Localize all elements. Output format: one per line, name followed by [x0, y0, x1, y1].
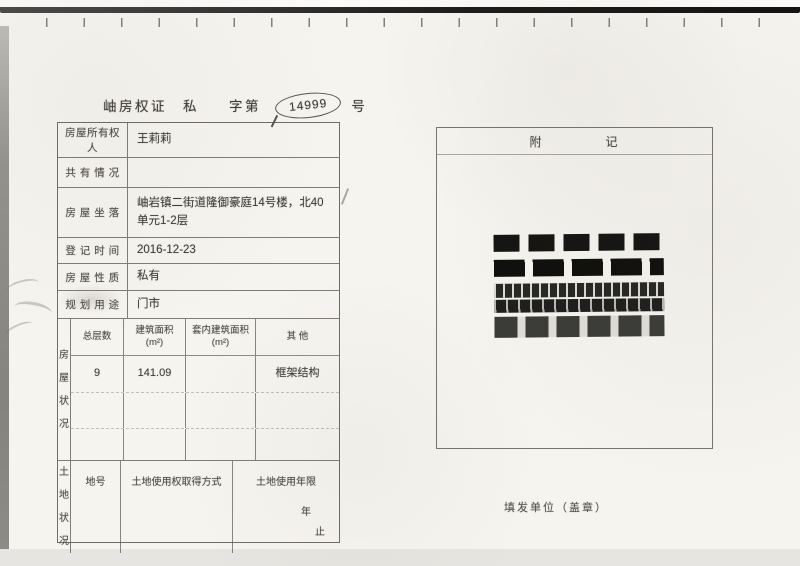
table-row: 登 记 时 间 2016-12-23 [58, 238, 339, 264]
certificate-form-table: 房屋所有权人 王莉莉 共 有 情 况 房 屋 坐 落 岫岩镇二街道隆御豪庭14号… [57, 122, 340, 543]
building-area-value: 141.09 [124, 356, 186, 392]
scanned-certificate-page: 岫房权证 私 字第 14999 号 房屋所有权人 王莉莉 共 有 情 况 房 屋… [0, 0, 800, 566]
registration-date-value: 2016-12-23 [128, 238, 339, 263]
land-parcel-number-header: 地号 [71, 461, 121, 553]
scan-edge-line [0, 7, 800, 13]
co-ownership-value [128, 158, 339, 187]
certificate-title-suffix: 号 [351, 95, 367, 115]
remarks-header: 附 记 [437, 128, 712, 155]
land-use-term-text: 土地使用年限 [256, 477, 316, 488]
planned-use-value: 门市 [128, 291, 339, 318]
stray-pen-mark [341, 188, 349, 205]
certificate-title-mid: 字第 [229, 95, 261, 115]
housing-condition-side-strip: 房屋状况 [58, 319, 71, 460]
land-condition-section: 土地状况 地号 土地使用权取得方式 土地使用年限 年 止 [58, 461, 339, 553]
certificate-ownership-type: 私 [183, 95, 199, 115]
certificate-title-prefix: 岫房权证 [103, 95, 167, 115]
housing-header-row: 总层数 建筑面积 (m²) 套内建筑面积 (m²) 其 他 [71, 319, 339, 356]
housing-empty-row [71, 429, 339, 460]
empty-cell [186, 429, 256, 460]
inner-area-header: 套内建筑面积 (m²) [186, 319, 256, 355]
land-use-right-acquisition-header: 土地使用权取得方式 [121, 461, 233, 553]
certificate-title: 岫房权证 私 字第 14999 号 [103, 90, 367, 120]
registration-date-label: 登 记 时 间 [58, 238, 128, 263]
co-ownership-label: 共 有 情 况 [58, 158, 128, 187]
empty-cell [256, 393, 339, 428]
empty-cell [256, 429, 339, 460]
margin-ink-smudge [2, 272, 56, 352]
land-condition-side-strip: 土地状况 [58, 461, 71, 553]
housing-condition-table: 总层数 建筑面积 (m²) 套内建筑面积 (m²) 其 他 9 141.09 框… [71, 319, 339, 460]
building-area-header: 建筑面积 (m²) [124, 319, 186, 355]
other-value: 框架结构 [256, 356, 339, 392]
total-floors-value: 9 [71, 356, 124, 392]
remarks-title-left-char: 附 [529, 133, 543, 150]
table-row: 房屋所有权人 王莉莉 [58, 123, 339, 158]
empty-cell [124, 429, 186, 460]
owner-label: 房屋所有权人 [58, 123, 128, 157]
remarks-title-right-char: 记 [606, 133, 620, 150]
land-use-term-header: 土地使用年限 年 止 [233, 461, 339, 553]
label-smudge [58, 284, 124, 314]
stamp-text-row [494, 315, 664, 338]
stamp-text-row [494, 282, 664, 298]
illegible-seal-stamp [493, 233, 664, 338]
housing-condition-label: 房屋状况 [59, 344, 70, 436]
inner-area-value [186, 356, 256, 392]
location-label: 房 屋 坐 落 [58, 188, 128, 237]
property-nature-value: 私有 [128, 264, 339, 290]
empty-cell [71, 393, 124, 428]
stamp-text-row [493, 233, 663, 252]
table-row: 房 屋 坐 落 岫岩镇二街道隆御豪庭14号楼，北40单元1-2层 [58, 188, 339, 238]
total-floors-header: 总层数 [71, 319, 124, 355]
stamp-text-row [494, 298, 664, 313]
empty-cell [71, 429, 124, 460]
land-condition-table: 地号 土地使用权取得方式 土地使用年限 年 止 [71, 461, 339, 553]
term-end-mark: 止 [315, 523, 325, 538]
other-header: 其 他 [256, 319, 339, 355]
land-condition-label: 土地状况 [59, 461, 70, 553]
housing-empty-row [71, 393, 339, 429]
remarks-box: 附 记 [436, 127, 713, 449]
empty-cell [124, 393, 186, 428]
serial-number-circled: 14999 [274, 89, 343, 121]
location-value: 岫岩镇二街道隆御豪庭14号楼，北40单元1-2层 [128, 188, 339, 237]
owner-value: 王莉莉 [128, 123, 339, 157]
housing-value-row: 9 141.09 框架结构 [71, 356, 339, 393]
issuing-unit-seal-label: 填发单位（盖章） [504, 499, 608, 515]
stamp-text-row [494, 258, 664, 277]
housing-condition-section: 房屋状况 总层数 建筑面积 (m²) 套内建筑面积 (m²) 其 他 9 141… [58, 319, 339, 461]
empty-cell [186, 393, 256, 428]
year-mark: 年 [301, 503, 311, 518]
scan-top-margin [0, 0, 800, 7]
table-row: 共 有 情 况 [58, 158, 339, 188]
perforation-tick-marks [46, 18, 792, 27]
